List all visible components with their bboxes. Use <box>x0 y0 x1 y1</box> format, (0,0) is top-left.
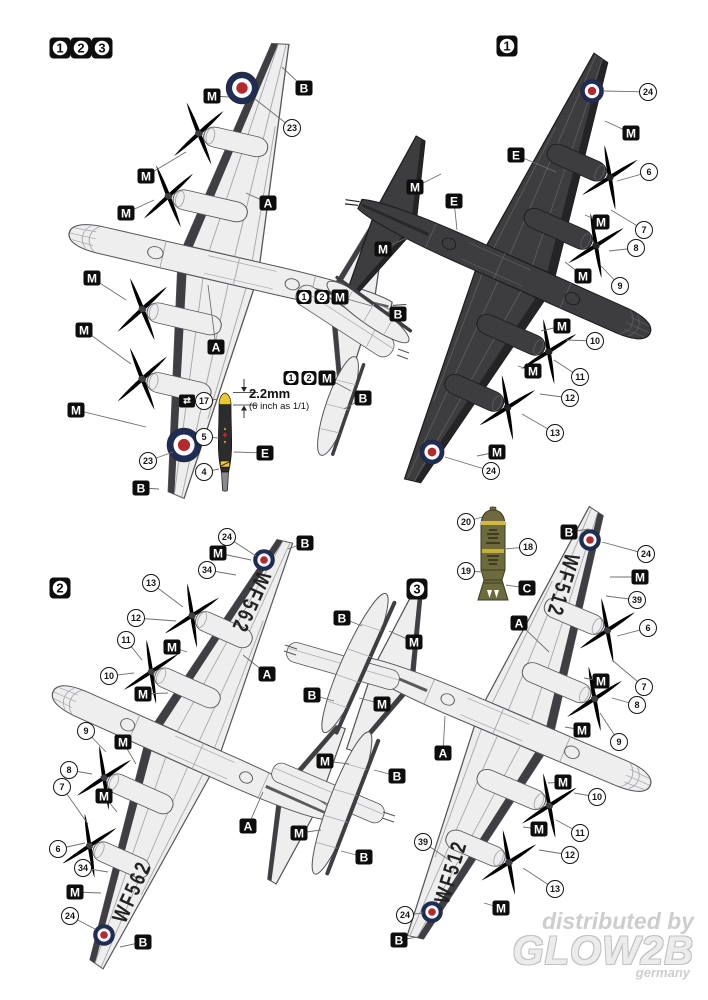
roundel <box>254 550 275 571</box>
roundel <box>226 72 258 104</box>
roundel <box>94 925 115 946</box>
instruction-sheet: 123123MB23AMMMMM23BA12MB12MB⇄175E424ME67… <box>0 0 708 1000</box>
dimension-scale-note: (6 inch as 1/1) <box>249 401 309 412</box>
roundel <box>422 902 443 923</box>
dimension-value: 2.2mm <box>249 386 309 401</box>
stabilizer-detail-center <box>292 273 415 459</box>
dimension-note: 2.2mm (6 inch as 1/1) <box>249 386 309 412</box>
bomb-detail <box>478 507 508 600</box>
aircraft-bottom-view-scheme-2 <box>0 479 439 1000</box>
diagram-art <box>0 0 708 1000</box>
aircraft-top-view-scheme-1-dark <box>251 0 708 546</box>
roundel <box>420 440 444 464</box>
roundel <box>167 428 201 462</box>
roundel <box>580 79 603 102</box>
roundel <box>580 530 601 551</box>
